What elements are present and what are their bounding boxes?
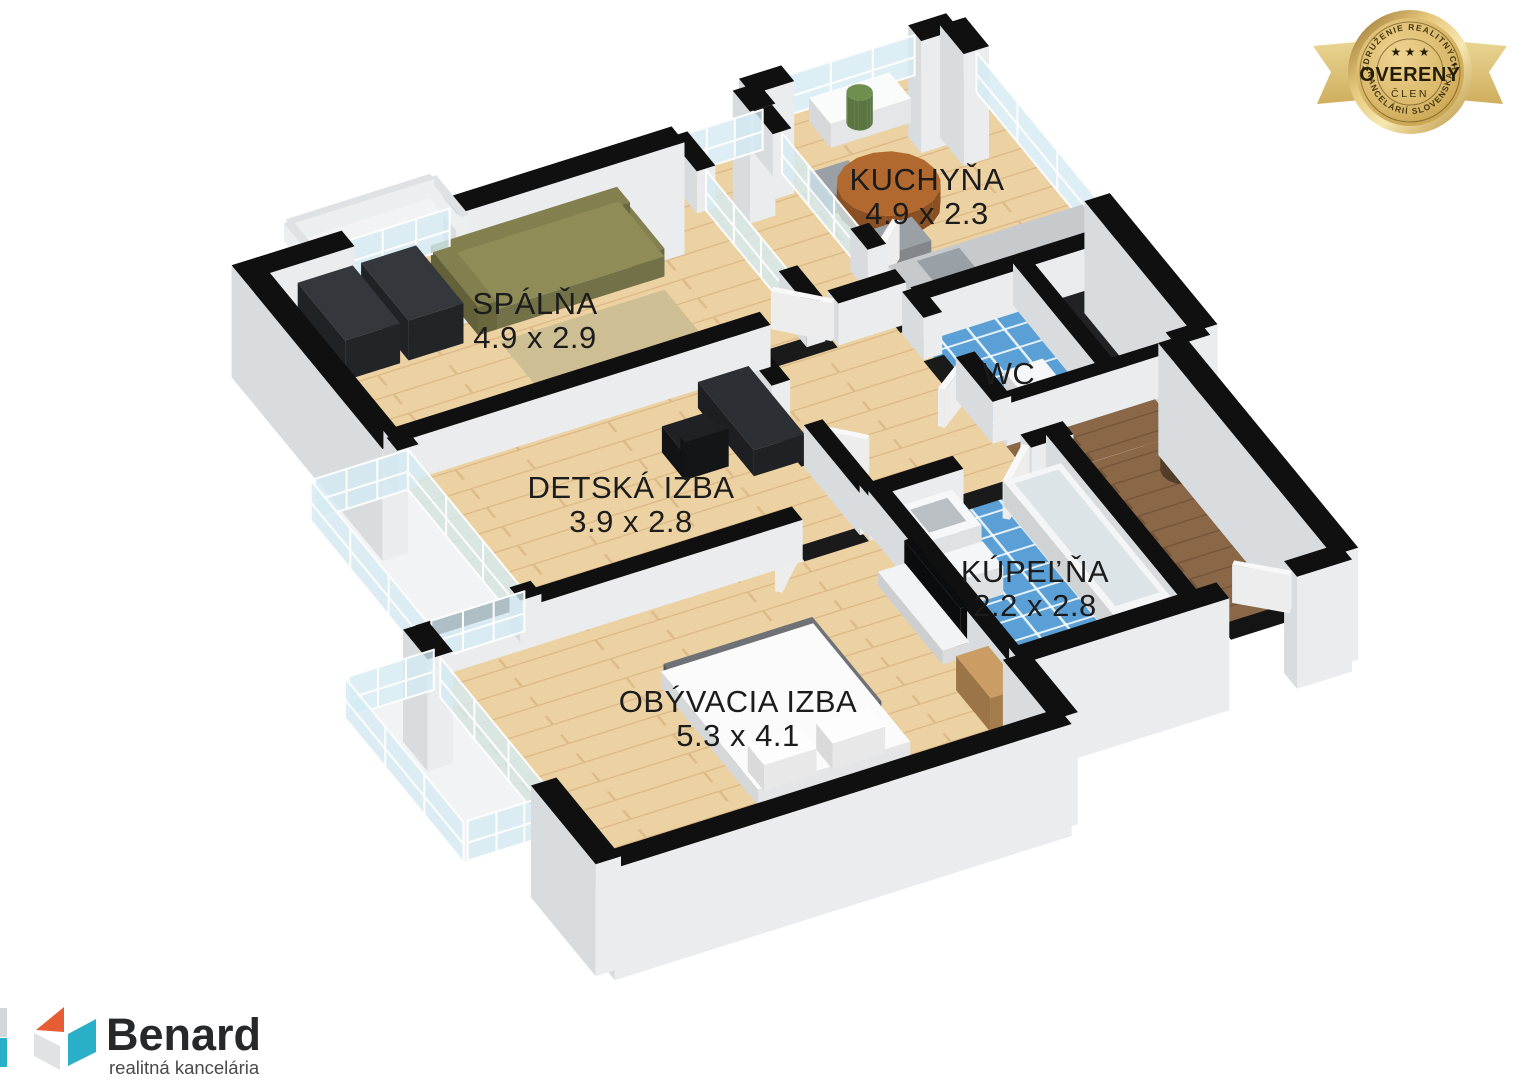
room-dims-detska: 3.9 x 2.8 (569, 504, 692, 539)
plant-kuchyna (851, 98, 855, 130)
room-label-obyvacia: OBÝVACIA IZBA (619, 684, 858, 719)
room-dims-kupelna: 2.2 x 2.8 (973, 588, 1096, 623)
wall-ext-se-a (1297, 560, 1352, 689)
badge-subtitle: ČLEN (1391, 87, 1429, 100)
room-label-spalna: SPÁLŇA (472, 286, 597, 321)
plant-kuchyna (859, 100, 864, 130)
badge-stars: ★ ★ ★ (1391, 45, 1430, 59)
logo-cube-orange-icon (36, 1007, 64, 1032)
door-wc (938, 388, 945, 428)
badge-title: OVERENÝ (1359, 62, 1460, 86)
floorplan-3d: SPÁLŇA 4.9 x 2.9 KUCHYŇA 4.9 x 2.3 DETSK… (0, 0, 1513, 1080)
wall-ext-obyvacia-sw-a (596, 856, 621, 976)
verified-badge: ZDRUŽENIE REALITNÝCH KANCELÁRIÍ SLOVENSK… (1313, 10, 1507, 134)
logo-cube-gray-icon (34, 1033, 60, 1070)
logo-cube-teal-icon (68, 1019, 96, 1066)
room-dims-spalna: 4.9 x 2.9 (473, 320, 596, 355)
benard-logo: Benard realitná kancelária (34, 1007, 261, 1078)
logo-name: Benard (106, 1009, 261, 1060)
room-label-wc: WC (983, 356, 1036, 391)
plant-kuchyna (854, 100, 859, 131)
plant-kuchyna (864, 99, 868, 130)
room-label-kupelna: KÚPEĽŇA (961, 554, 1109, 589)
door-spalna (832, 299, 834, 342)
door-vchod (1290, 571, 1292, 614)
door-detska (867, 435, 869, 478)
room-label-detska: DETSKÁ IZBA (527, 470, 734, 505)
plant-kuchyna (848, 96, 851, 128)
page-edge-mark (0, 1008, 7, 1067)
plan-geometry (232, 13, 1359, 980)
page: SPÁLŇA 4.9 x 2.9 KUCHYŇA 4.9 x 2.3 DETSK… (0, 0, 1513, 1080)
room-label-kuchyna: KUCHYŇA (849, 162, 1004, 197)
rail-balkon-a-e (460, 215, 469, 236)
logo-tagline: realitná kancelária (109, 1057, 260, 1078)
wall-int-chodba-e-d (993, 396, 1012, 444)
room-dims-obyvacia: 5.3 x 4.1 (676, 718, 799, 753)
plant-kuchyna (871, 94, 873, 127)
plant-kuchyna (846, 93, 847, 126)
wall-int-chodba-e-c (924, 312, 943, 360)
room-dims-kuchyna: 4.9 x 2.3 (865, 196, 988, 231)
plant-kuchyna (868, 97, 871, 129)
